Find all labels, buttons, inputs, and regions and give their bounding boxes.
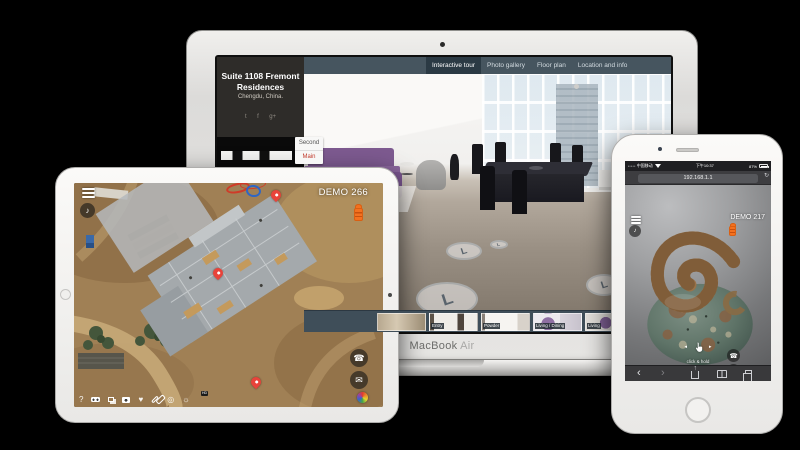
- social-links: t f g+: [217, 105, 304, 123]
- tab-interactive-tour[interactable]: Interactive tour: [426, 57, 481, 74]
- home-button[interactable]: [60, 289, 71, 300]
- dining-table-front: [490, 174, 584, 202]
- thumbnail-scene[interactable]: Powder: [481, 313, 530, 331]
- hand-icon: [692, 341, 705, 354]
- aerial-site-photo[interactable]: [74, 183, 383, 407]
- floorplan-section: [221, 151, 292, 160]
- phone-icon: ☎: [729, 352, 737, 360]
- armchair: [416, 160, 446, 190]
- dining-chair: [512, 170, 527, 214]
- tour-tabs: Interactive tour Photo gallery Floor pla…: [426, 57, 633, 74]
- status-bar: ••••• 中国移动 下午10:37 87%: [625, 161, 771, 171]
- menu-icon[interactable]: [82, 188, 95, 200]
- hydrant-icon[interactable]: [728, 223, 737, 236]
- ceiling-sprinkler: [574, 84, 579, 89]
- floorplan-preview[interactable]: [217, 137, 304, 169]
- safari-toolbar: ‹ › ↑: [625, 365, 771, 381]
- listing-location: Chengdu, China.: [217, 94, 304, 100]
- speaker-icon: [676, 148, 699, 152]
- music-button[interactable]: ♪: [80, 203, 95, 218]
- call-button[interactable]: ☎: [350, 349, 368, 367]
- back-button[interactable]: ‹: [637, 366, 641, 380]
- refresh-icon[interactable]: ↻: [764, 172, 769, 179]
- tab-location-info[interactable]: Location and info: [572, 57, 634, 74]
- model-viewer[interactable]: DEMO 217 ♪ ◂ ▸ click & hold to rotate ☎ …: [625, 185, 771, 365]
- heart-icon[interactable]: ♥: [138, 395, 143, 404]
- thumbnail-scene[interactable]: Living / Dining: [533, 313, 582, 331]
- iphone-device: ••••• 中国移动 下午10:37 87% 192.168.1.1 ↻: [611, 134, 783, 434]
- ipad-device: DEMO 266 ♪ ☎ ✉ ? ♥ ◎ ☼ HD: [55, 167, 399, 423]
- dining-chair: [480, 166, 495, 210]
- tab-photo-gallery[interactable]: Photo gallery: [481, 57, 531, 74]
- help-icon[interactable]: ?: [79, 395, 83, 404]
- vr-goggles-icon[interactable]: [91, 397, 100, 402]
- demo-label: DEMO 217: [730, 214, 765, 221]
- call-button[interactable]: ☎: [727, 349, 740, 362]
- listing-title: Suite 1108 Fremont Residences: [221, 71, 300, 92]
- forward-button[interactable]: ›: [661, 366, 665, 380]
- demo-label: DEMO 266: [319, 187, 368, 198]
- share-icon[interactable]: ↑: [691, 371, 699, 379]
- link-icon[interactable]: [151, 396, 159, 404]
- thumbnail-label: Entry: [431, 323, 444, 329]
- gplus-icon[interactable]: g+: [269, 114, 276, 120]
- floor-selector: Second Main: [295, 137, 323, 164]
- music-button[interactable]: ♪: [629, 225, 641, 237]
- email-button[interactable]: ✉: [350, 371, 368, 389]
- twitter-icon[interactable]: t: [245, 114, 247, 120]
- arrow-right-icon: ▸: [709, 344, 712, 350]
- menu-icon[interactable]: [631, 216, 641, 225]
- carrier-label: 中国移动: [637, 163, 653, 169]
- iphone-screen: ••••• 中国移动 下午10:37 87% 192.168.1.1 ↻: [625, 161, 771, 381]
- floor-option-second[interactable]: Second: [295, 137, 323, 150]
- macbook-lid-notch: [396, 360, 484, 367]
- camera-icon: [658, 147, 662, 151]
- nav-hotspot[interactable]: L: [446, 242, 482, 260]
- signal-icon: •••••: [628, 164, 636, 168]
- table-centerpiece: [529, 166, 543, 170]
- music-note-icon: ♪: [86, 206, 90, 215]
- home-button[interactable]: [685, 397, 711, 423]
- arrow-left-icon: ◂: [685, 344, 688, 350]
- envelope-icon: ✉: [355, 375, 363, 386]
- tour-navbar: Interactive tour Photo gallery Floor pla…: [304, 57, 671, 74]
- thumbnail-scene[interactable]: [377, 313, 426, 331]
- thumbnail-label: Living / Dining: [535, 323, 565, 329]
- hd-badge: HD: [201, 391, 208, 396]
- battery-icon: [759, 164, 768, 168]
- thumbnail-scene[interactable]: Entry: [429, 313, 478, 331]
- safari-url-bar: 192.168.1.1 ↻: [625, 171, 771, 185]
- screens-icon[interactable]: [108, 397, 114, 402]
- record-icon[interactable]: ◎: [167, 395, 174, 404]
- clock-label: 下午10:37: [661, 163, 749, 169]
- bookmarks-icon[interactable]: [717, 370, 727, 378]
- battery-percent: 87%: [749, 164, 757, 169]
- settings-gear-icon[interactable]: ☼: [182, 395, 189, 404]
- webcam-icon: [440, 42, 445, 47]
- facebook-icon[interactable]: f: [257, 114, 259, 120]
- ipad-toolbar: ? ♥ ◎ ☼: [79, 395, 190, 404]
- camera-button-icon[interactable]: [122, 397, 130, 403]
- photosphere-button[interactable]: [357, 392, 368, 403]
- floor-vase: [450, 154, 459, 180]
- tabs-icon[interactable]: [745, 370, 752, 377]
- phone-icon: ☎: [353, 353, 364, 364]
- ipad-screen: DEMO 266 ♪ ☎ ✉ ? ♥ ◎ ☼ HD: [74, 183, 383, 407]
- hydrant-icon[interactable]: [353, 204, 364, 221]
- nav-hotspot[interactable]: L: [490, 240, 508, 249]
- camera-icon: [388, 293, 392, 297]
- address-field[interactable]: 192.168.1.1: [638, 174, 758, 183]
- music-note-icon: ♪: [634, 228, 637, 234]
- side-table: [400, 162, 414, 166]
- stage: Interactive tour Photo gallery Floor pla…: [0, 0, 800, 450]
- thumbnail-label: Living: [587, 323, 601, 329]
- nav-hotspot[interactable]: L: [416, 282, 478, 310]
- floor-option-main[interactable]: Main: [295, 150, 323, 164]
- thumbnail-label: Powder: [483, 323, 500, 329]
- tab-floor-plan[interactable]: Floor plan: [531, 57, 572, 74]
